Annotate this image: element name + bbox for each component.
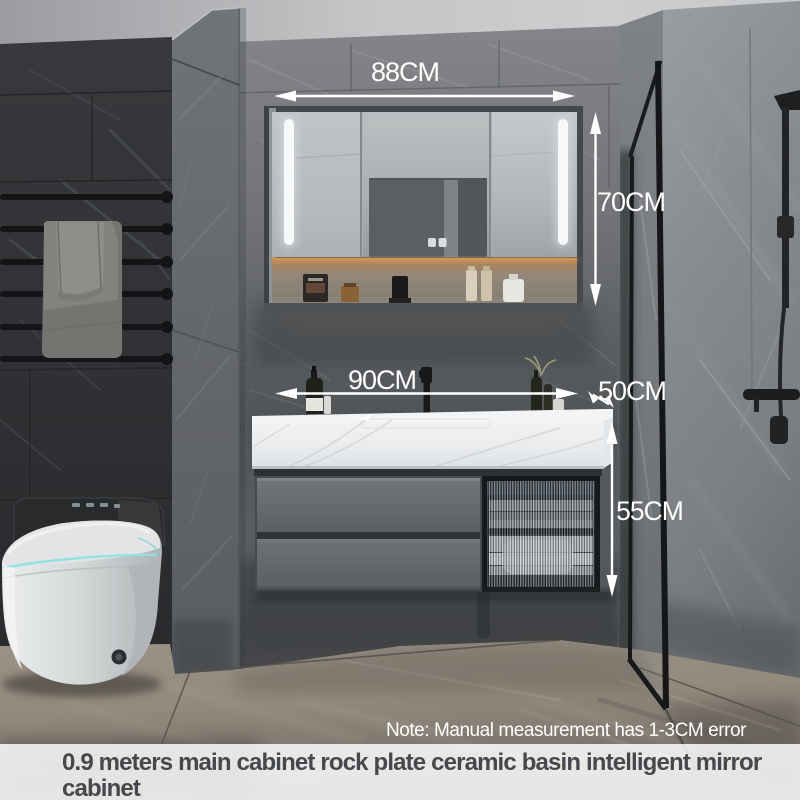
svg-text:88CM: 88CM	[371, 57, 439, 87]
svg-text:0.9 meters main cabinet rock p: 0.9 meters main cabinet rock plate ceram…	[62, 749, 762, 776]
svg-text:cabinet: cabinet	[62, 775, 141, 800]
svg-text:55CM: 55CM	[616, 496, 683, 526]
svg-text:90CM: 90CM	[348, 365, 416, 395]
svg-text:70CM: 70CM	[597, 187, 665, 217]
svg-text:Note: Manual measurement has 1: Note: Manual measurement has 1-3CM error	[386, 720, 747, 741]
